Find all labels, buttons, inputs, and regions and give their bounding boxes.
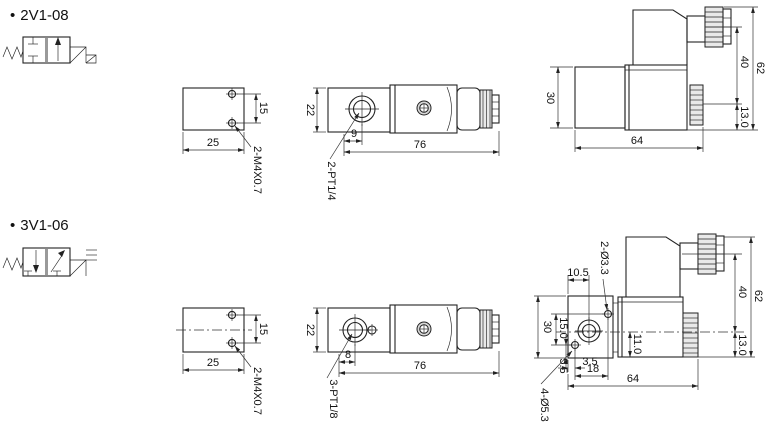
dim-total-length: 76 [414, 360, 426, 372]
end-view-2v1: 30 64 40 62 13.0 [544, 7, 766, 152]
dim-hole-spacing: 15 [257, 102, 269, 114]
gland-end-cap [723, 9, 731, 44]
dim-port-center-depth: 11.0 [631, 334, 643, 355]
dim-total-width: 64 [627, 373, 639, 385]
section-2v1-08: •2V1-08 15 25 [3, 7, 766, 201]
dim-nut-height: 13.0 [738, 106, 750, 127]
din-connector [457, 308, 480, 350]
dim-port-offset: 9 [351, 128, 357, 140]
gland-end-cap [716, 236, 724, 271]
dim-port-offset: 8 [345, 349, 351, 361]
connector-tower [626, 237, 680, 297]
connector-ribs [480, 90, 492, 128]
dim-body-height: 22 [304, 324, 316, 336]
armature-tube [575, 67, 625, 128]
bracket-view-2v1: 15 25 2-M4X0.7 [183, 88, 269, 194]
coil-screw-icon [417, 322, 431, 336]
port-thread-callout: 2-PT1/4 [325, 161, 337, 200]
connector-tower [633, 10, 687, 65]
manual-override-nut [690, 85, 703, 125]
dim-plate-hole-offset: 10.5 [567, 267, 588, 279]
coil-screw-icon [417, 101, 431, 115]
title-bullet: • [10, 217, 15, 234]
thread-callout: 2-M4X0.7 [251, 367, 263, 415]
dim-connector-height: 40 [736, 286, 748, 298]
coil-block [618, 297, 683, 357]
mount-holes-callout: 4-Ø5.3 [538, 388, 550, 422]
din-connector [457, 88, 480, 130]
valve-schematic-3way-icon [3, 248, 97, 276]
gland-neck [680, 243, 698, 269]
port-thread-callout: 3-PT1/8 [327, 379, 339, 418]
title-label: 3V1-06 [20, 217, 68, 234]
dim-total-length: 76 [414, 139, 426, 151]
dim-bracket-width: 25 [207, 357, 219, 369]
dim-hole-spacing-h: 18 [587, 363, 599, 375]
dim-total-height: 62 [752, 290, 764, 302]
side-view-3v1: 22 8 76 3-PT1/8 [304, 305, 499, 419]
mounting-hole-top [226, 88, 238, 100]
thread-callout: 2-M4X0.7 [251, 146, 263, 194]
end-view-3v1: 10.5 2-Ø3.3 30 15.0 5.5 3.5 18 64 [534, 234, 764, 422]
connector-end-cap [492, 95, 499, 123]
valve-dimension-drawing: •2V1-08 15 25 [0, 0, 770, 426]
dim-total-width: 64 [631, 135, 643, 147]
mounting-hole-top [226, 309, 238, 321]
connector-end-cap [492, 315, 499, 343]
exhaust-port-circle [366, 324, 378, 336]
pilot-holes-callout: 2-Ø3.3 [598, 241, 610, 275]
dim-plate-height: 30 [541, 321, 553, 333]
bracket-view-3v1: 15 25 2-M4X0.7 [176, 308, 269, 415]
dim-bracket-width: 25 [207, 137, 219, 149]
dim-hole-spacing-v: 15.0 [557, 317, 569, 338]
dim-body-height: 30 [544, 92, 556, 104]
gland-neck [687, 16, 705, 42]
dim-hole-spacing: 15 [257, 323, 269, 335]
port-circle [345, 92, 379, 126]
coil-block [625, 65, 687, 130]
manual-override-nut [683, 313, 698, 357]
section-title: •2V1-08 [10, 7, 69, 24]
dim-nut-height: 13.0 [736, 334, 748, 355]
dim-connector-height: 40 [738, 56, 750, 68]
dim-body-height: 22 [304, 104, 316, 116]
section-3v1-06: •3V1-06 15 [3, 217, 764, 422]
title-bullet: • [10, 7, 15, 24]
side-view-2v1: 22 9 76 2-PT1/4 [304, 85, 499, 201]
technical-drawing-page: •2V1-08 15 25 [0, 0, 770, 426]
title-label: 2V1-08 [20, 7, 68, 24]
connector-ribs [480, 310, 492, 348]
section-title: •3V1-06 [10, 217, 69, 234]
dim-total-height: 62 [754, 62, 766, 74]
valve-body [328, 88, 390, 132]
valve-schematic-2way-icon [3, 37, 96, 63]
